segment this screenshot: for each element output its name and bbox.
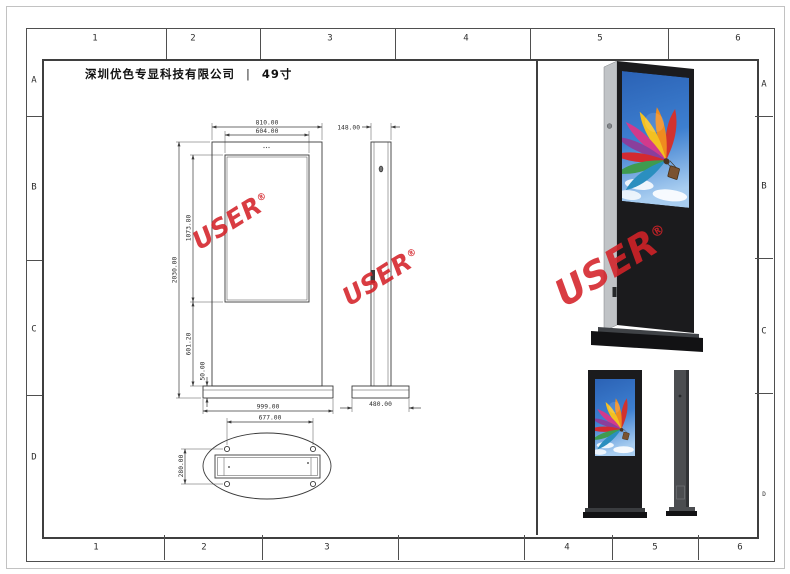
anchor-bolt-holes: [224, 446, 315, 486]
dim-overall-height: 2030.00: [172, 257, 179, 284]
kiosk-base-plinth: [666, 511, 697, 516]
dim-base-width: 999.00: [257, 404, 280, 411]
front-base: [203, 386, 333, 398]
bottom-dimensions: 677.00 280.00: [178, 415, 313, 485]
dim-bolt-span-width: 677.00: [259, 415, 282, 422]
cad-drawing-canvas: 810.00 604.00 2030.00 1073.80 601.20 50.…: [0, 0, 790, 574]
render-side-small: [666, 370, 697, 516]
kiosk-base-plinth: [583, 512, 647, 518]
speaker-button-icon: [607, 124, 612, 129]
bottom-view: [203, 433, 331, 499]
screen-image-balloon: [590, 379, 635, 456]
light-sensor: [379, 166, 383, 172]
dim-base-height: 50.00: [200, 361, 207, 380]
dim-front-width: 810.00: [256, 120, 279, 127]
render-front-small: [583, 370, 647, 518]
side-base: [352, 386, 409, 398]
dim-side-depth: 148.00: [337, 125, 360, 132]
dim-screen-width: 604.00: [256, 128, 279, 135]
drawing-sheet: 1 2 3 4 5 6 1 2 3 4 5 6 A B C D A B C D …: [0, 0, 790, 574]
front-view: [203, 142, 333, 398]
vent-mark: [263, 147, 269, 148]
dim-bolt-span-depth: 280.00: [178, 454, 185, 477]
speaker-button-icon: [679, 395, 682, 398]
dim-side-base-depth: 480.00: [369, 401, 392, 408]
screen-image-balloon: [613, 70, 689, 208]
render-3d-large: [591, 61, 703, 352]
dim-lower-height: 601.20: [186, 332, 193, 355]
